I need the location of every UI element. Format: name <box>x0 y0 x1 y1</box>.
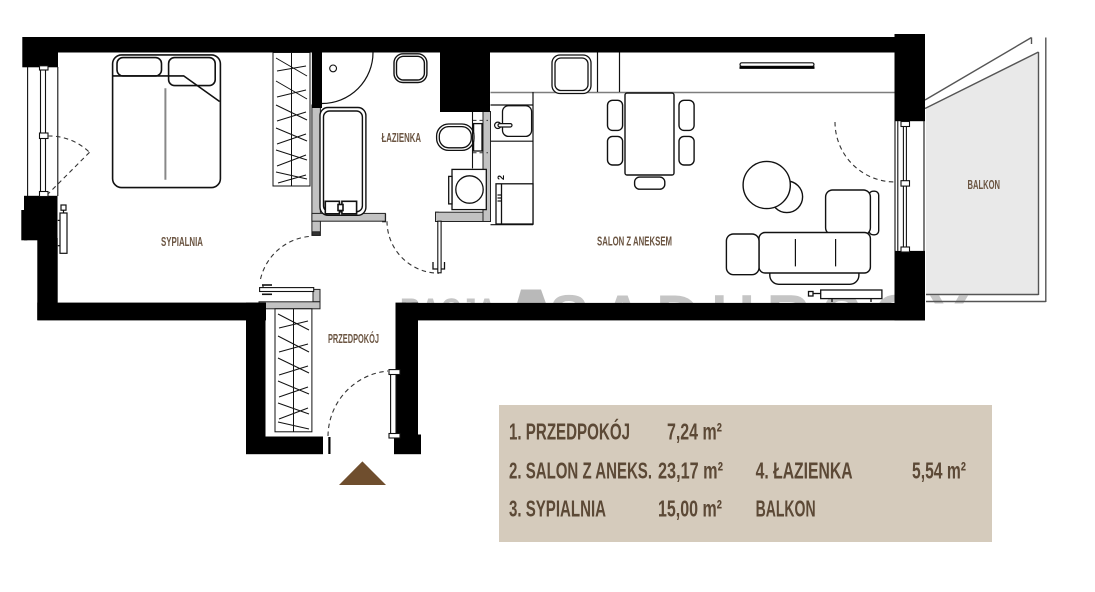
svg-text:SALON Z ANEKSEM: SALON Z ANEKSEM <box>597 235 672 249</box>
svg-text:2. SALON Z ANEKS.: 2. SALON Z ANEKS. <box>509 457 652 483</box>
svg-text:4. ŁAZIENKA: 4. ŁAZIENKA <box>756 457 853 483</box>
svg-text:SYPIALNIA: SYPIALNIA <box>161 235 203 249</box>
svg-text:5,54 m²: 5,54 m² <box>912 457 966 483</box>
svg-text:7,24 m²: 7,24 m² <box>667 419 722 445</box>
svg-text:PRZEDPOKÓJ: PRZEDPOKÓJ <box>328 331 379 346</box>
svg-text:ŁAZIENKA: ŁAZIENKA <box>382 131 422 145</box>
svg-text:3. SYPIALNIA: 3. SYPIALNIA <box>509 495 606 521</box>
svg-text:15,00 m²: 15,00 m² <box>658 495 722 521</box>
svg-text:2: 2 <box>496 175 506 180</box>
svg-text:BALKON: BALKON <box>756 495 816 521</box>
svg-text:BALKON: BALKON <box>968 178 1001 192</box>
svg-text:1. PRZEDPOKÓJ: 1. PRZEDPOKÓJ <box>509 418 630 445</box>
svg-text:23,17 m²: 23,17 m² <box>658 457 723 483</box>
